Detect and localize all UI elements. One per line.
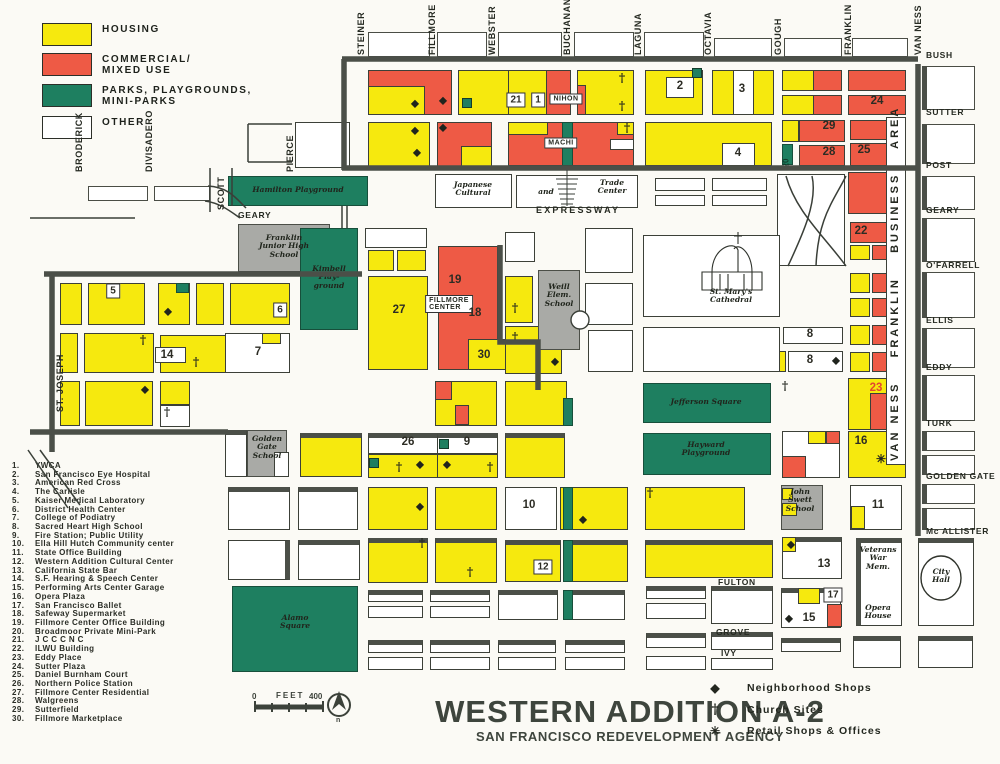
other-block [430,590,490,602]
number-marker: 14 [161,349,174,361]
church-site-icon: † [512,330,518,344]
number-marker: 16 [855,435,868,447]
neighborhood-shop-icon: ◆ [439,96,447,107]
street-label: FULTON [718,577,756,587]
other-block [295,122,350,168]
street-stub [922,431,975,451]
street-label: GEARY [238,210,271,220]
north-label: n [336,717,340,724]
number-marker: 25 [858,144,871,156]
commercial-block [782,456,806,478]
housing-block [60,283,82,325]
church-site-icon: † [193,355,199,369]
number-marker: 2 [677,80,683,92]
church-site-icon: † [619,99,625,113]
map-label: Veterans War Mem. [859,546,896,571]
number-marker: 22 [855,225,868,237]
street-label: GROVE [716,627,750,637]
map-label: Opera House [865,604,892,621]
other-block [712,178,767,191]
neighborhood-shop-icon: ◆ [579,515,587,526]
other-block [711,658,773,670]
map-label: Kimbell Play- ground [312,265,345,290]
street-label: GOLDEN GATE [926,471,995,481]
street-stub [852,38,908,57]
retail-shops-icon: ✳ [876,452,886,466]
other-block [505,232,535,262]
number-marker: 23 [870,382,883,394]
other-block [712,195,767,206]
street-label: BUSH [926,50,953,60]
other-block [781,638,841,652]
street-stub [922,218,975,262]
church-site-icon: † [396,460,402,474]
map-label: Franklin Junior High School [259,234,309,259]
housing-block [368,250,394,271]
neighborhood-shop-icon: ◆ [416,502,424,513]
park-block [563,487,573,530]
neighborhood-shops-icon: ◆ [710,681,719,695]
other-block [646,656,706,670]
commercial-block [435,381,452,400]
housing-block [645,540,773,578]
other-block [365,228,427,248]
other-block [430,640,490,653]
number-marker: 30 [478,349,491,361]
housing-block [850,298,870,317]
retail-shops-offices-label: Retail Shops & Offices [747,725,882,737]
housing-block [505,433,565,478]
number-marker: 19 [449,274,462,286]
housing-block [850,245,870,260]
housing-block [850,325,870,345]
housing-block [196,283,224,325]
other-block [711,586,773,624]
map-label: NIHON [549,94,582,105]
street-stub [574,32,634,57]
housing-block [262,333,281,344]
number-marker: 8 [807,354,813,366]
number-marker: 8 [807,328,813,340]
other-block [430,606,490,618]
housing-block [397,250,426,271]
commercial-block [546,70,571,115]
street-stub [714,38,772,57]
neighborhood-shop-icon: ◆ [164,307,172,318]
other-block [646,603,706,619]
housing-block [368,276,428,370]
number-marker: 17 [823,588,842,603]
mini-park-icon [369,458,379,468]
street-stub [368,32,430,57]
map-label: Weill Elem. School [545,283,574,308]
church-site-icon: † [487,460,493,474]
street-label: STEINER [356,12,366,55]
commercial-block [848,70,906,91]
mini-park-icon [462,98,472,108]
neighborhood-shop-icon: ◆ [416,460,424,471]
church-site-icon: † [647,486,653,500]
map-label: John Swett School [786,488,815,513]
street-label: PIERCE [285,135,295,172]
church-site-icon: † [512,301,518,315]
housing-block [645,487,745,530]
other-block [646,586,706,599]
neighborhood-shop-icon: ◆ [411,126,419,137]
number-marker: 1 [531,93,545,108]
number-marker: 27 [393,304,406,316]
housing-block [508,122,548,135]
number-marker: 3 [739,83,745,95]
neighborhood-shop-icon: ◆ [411,99,419,110]
housing-block [808,431,826,444]
map-label: Jefferson Square [670,398,741,406]
street-stub [437,32,487,57]
park-block [176,283,189,293]
street-label: DIVISADERO [144,110,154,172]
map-label: Hayward Playground [682,441,731,458]
number-marker: 26 [402,436,415,448]
other-block [225,430,247,477]
street-stub [784,38,842,57]
other-block [655,195,705,206]
church-site-icon: † [782,379,788,393]
other-block [585,228,633,273]
map-canvas: STEINERFILLMOREWEBSTERBUCHANANLAGUNAOCTA… [0,0,1000,764]
church-site-icon: † [619,71,625,85]
street-label: ST. JOSEPH [55,354,65,412]
housing-block [851,506,865,529]
map-label: Japanese Cultural [454,181,492,198]
street-label: BRODERICK [74,112,84,172]
housing-block [850,273,870,293]
map-label: Hamilton Playground [252,186,343,194]
number-marker: 15 [803,612,816,624]
church-sites-icon: † [711,702,718,718]
map-label: FILLMORE CENTER [425,295,473,313]
church-site-icon: † [624,121,630,135]
neighborhood-shop-icon: ◆ [785,614,793,625]
street-stub [88,186,148,201]
street-label: ELLIS [926,315,954,325]
number-marker: 5 [106,284,120,299]
map-label: Golden Gate School [252,435,282,460]
other-block [610,139,634,150]
commercial-block [827,604,842,627]
number-marker: 20 [782,159,791,168]
other-block [588,330,633,372]
street-label: OCTAVIA [703,12,713,55]
number-marker: 11 [872,499,884,511]
commercial-block [455,405,469,425]
street-label: VAN NESS [913,5,923,55]
commercial-block [813,70,842,91]
map-label: and [538,188,554,196]
street-label: WEBSTER [487,6,497,55]
street-stub [922,484,975,504]
other-block [368,606,423,618]
other-block [298,540,360,580]
street-label: GEARY [926,205,959,215]
number-marker: 29 [823,120,836,132]
other-block [655,178,705,191]
other-block [298,487,358,530]
map-subtitle: SAN FRANCISCO REDEVELOPMENT AGENCY [476,729,784,744]
church-site-icon: † [467,565,473,579]
commercial-block [813,95,842,115]
other-block [498,657,556,670]
housing-block [160,381,190,405]
other-block [565,657,625,670]
number-marker: 10 [523,499,536,511]
street-label: GOUGH [773,18,783,55]
housing-block [798,588,820,604]
housing-block [435,487,497,530]
other-block [918,636,973,668]
street-stub [154,186,210,201]
neighborhood-shop-icon: ◆ [832,356,840,367]
neighborhood-shop-icon: ◆ [551,357,559,368]
map-label: Alamo Square [280,614,310,631]
church-site-icon: † [419,536,425,550]
street-label: EDDY [926,362,952,372]
other-block [853,636,901,668]
other-block [368,590,423,602]
franklin-business-area-banner: VAN NESS FRANKLIN BUSINESS AREA [889,106,901,461]
map-label: EXPRESSWAY [536,205,620,215]
housing-block [782,120,799,142]
other-block [585,283,633,325]
other-block [777,174,845,266]
mini-park-icon [692,68,702,78]
street-stub [922,272,975,318]
other-block [430,657,490,670]
street-label: TURK [926,418,952,428]
church-sites-label: Church Sites [747,704,824,716]
other-block [565,640,625,653]
other-block [368,657,423,670]
other-block [498,590,558,620]
number-marker: 6 [273,303,287,318]
scale-max-label: 400 [309,692,322,701]
street-label: SCOTT [216,177,226,211]
neighborhood-shops-label: Neighborhood Shops [747,682,872,694]
housing-block [505,276,533,323]
other-block [228,487,290,530]
map-label: MACHI [544,138,577,149]
street-stub [644,32,704,57]
neighborhood-shop-icon: ◆ [141,385,149,396]
housing-block [505,381,567,426]
park-block [563,398,573,426]
scale-zero-label: 0 [252,692,256,701]
street-label: FILLMORE [427,4,437,55]
street-label: IVY [721,648,737,658]
neighborhood-shop-icon: ◆ [443,460,451,471]
number-marker: 21 [506,93,525,108]
number-marker: 9 [464,436,470,448]
number-marker: 13 [818,558,831,570]
scale-unit-label: FEET [276,691,304,700]
number-marker: 24 [871,95,884,107]
park-block [563,540,573,582]
map-label: Trade Center [598,179,627,196]
neighborhood-shop-icon: ◆ [439,123,447,134]
other-block [646,633,706,648]
street-stub [922,66,975,110]
neighborhood-shop-icon: ◆ [787,540,795,551]
street-stub [922,124,975,164]
number-marker: 12 [533,560,552,575]
number-marker: 7 [255,346,261,358]
street-label: BUCHANAN [562,0,572,55]
neighborhood-shop-icon: ◆ [413,148,421,159]
other-block [228,540,290,580]
street-label: Mc ALLISTER [926,526,989,536]
map-label: St. Mary's Cathedral [710,288,753,305]
church-site-icon: † [164,405,170,419]
retail-shops-offices-icon: ✳ [710,724,720,738]
street-label: SUTTER [926,107,964,117]
number-marker: 28 [823,146,836,158]
housing-block [368,122,430,168]
map-page: HOUSING COMMERCIAL/ MIXED USE PARKS, PLA… [0,0,1000,764]
housing-block [300,433,362,477]
street-label: O'FARRELL [926,260,980,270]
housing-block [850,352,870,372]
number-marker: 18 [469,307,482,319]
street-stub [922,375,975,421]
street-label: FRANKLIN [843,4,853,55]
other-block [498,640,556,653]
street-label: LAGUNA [633,13,643,55]
street-stub [498,32,562,57]
church-site-icon: † [140,333,146,347]
other-block [643,327,780,372]
map-label: City Hall [932,568,950,585]
park-block [563,590,573,620]
other-block [565,590,625,620]
other-block [368,640,423,653]
commercial-block [826,431,840,444]
number-marker: 4 [735,147,741,159]
housing-block [461,146,492,168]
mini-park-icon [439,439,449,449]
street-label: POST [926,160,952,170]
